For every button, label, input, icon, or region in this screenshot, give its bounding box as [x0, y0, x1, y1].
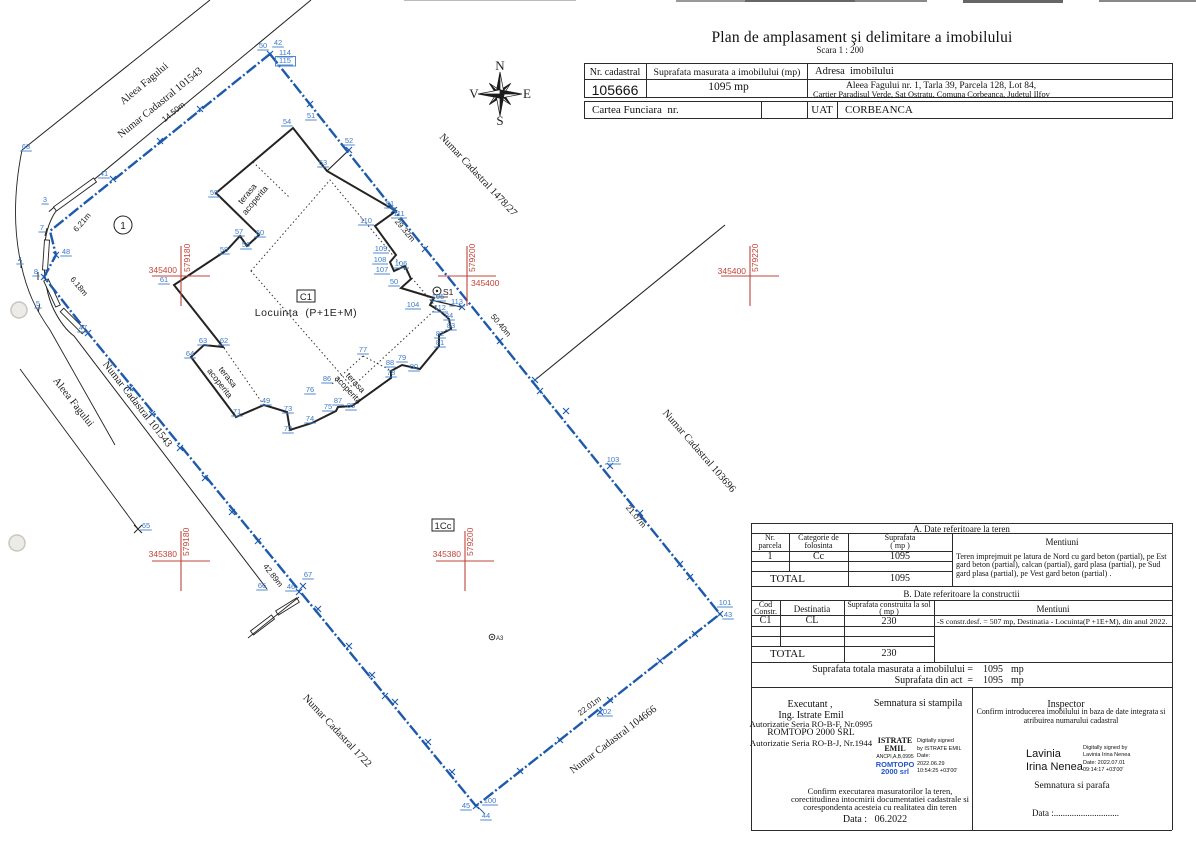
svg-text:50: 50: [259, 41, 267, 50]
svg-text:62: 62: [220, 336, 228, 345]
svg-text:104: 104: [407, 300, 420, 309]
svg-text:Locuinta (P+1E+M): Locuinta (P+1E+M): [255, 307, 357, 319]
svg-text:105: 105: [432, 292, 445, 301]
svg-text:63: 63: [199, 336, 207, 345]
svg-text:115: 115: [279, 56, 291, 65]
svg-text:8: 8: [34, 267, 38, 276]
svg-text:44: 44: [482, 811, 490, 820]
svg-text:64: 64: [186, 349, 194, 358]
svg-text:106: 106: [395, 259, 408, 268]
svg-text:579180: 579180: [181, 527, 191, 556]
svg-text:65: 65: [142, 521, 150, 530]
svg-text:68: 68: [22, 142, 30, 151]
svg-text:100: 100: [484, 796, 497, 805]
svg-text:1: 1: [120, 221, 126, 232]
svg-text:82: 82: [436, 329, 444, 338]
svg-text:56: 56: [242, 240, 250, 249]
svg-text:345400: 345400: [718, 266, 747, 276]
svg-text:21.07m: 21.07m: [624, 503, 648, 529]
svg-text:4: 4: [18, 255, 22, 264]
svg-text:579180: 579180: [182, 243, 192, 272]
svg-text:579200: 579200: [465, 527, 475, 556]
svg-text:61: 61: [160, 275, 168, 284]
svg-text:48: 48: [62, 247, 70, 256]
svg-text:54: 54: [283, 117, 291, 126]
svg-text:49: 49: [262, 396, 270, 405]
svg-text:77: 77: [359, 345, 367, 354]
svg-text:81: 81: [436, 338, 444, 347]
svg-text:52: 52: [345, 136, 353, 145]
svg-text:C1: C1: [300, 292, 312, 303]
svg-text:Numar Cadastral 1722: Numar Cadastral 1722: [300, 693, 373, 770]
svg-text:Numar Cadastral 1478/27: Numar Cadastral 1478/27: [437, 132, 519, 219]
svg-text:345400: 345400: [149, 265, 178, 275]
svg-text:73: 73: [284, 404, 292, 413]
svg-text:84: 84: [445, 311, 453, 320]
svg-text:Numar Cadastral 101543: Numar Cadastral 101543: [100, 359, 174, 449]
svg-text:110: 110: [360, 216, 372, 225]
svg-text:103: 103: [607, 455, 620, 464]
svg-text:78: 78: [387, 368, 395, 377]
svg-text:66: 66: [258, 581, 266, 590]
svg-text:6.21m: 6.21m: [71, 211, 93, 234]
svg-text:108: 108: [374, 255, 387, 264]
svg-text:51: 51: [386, 199, 394, 208]
svg-text:29.32m: 29.32m: [393, 217, 417, 243]
svg-text:107: 107: [376, 265, 389, 274]
svg-text:E: E: [523, 86, 531, 101]
svg-text:109: 109: [375, 244, 388, 253]
svg-text:43: 43: [724, 610, 732, 619]
svg-text:579220: 579220: [750, 243, 760, 272]
svg-text:345400: 345400: [471, 278, 500, 288]
svg-text:75: 75: [324, 402, 332, 411]
svg-text:50.40m: 50.40m: [489, 312, 513, 338]
svg-text:111: 111: [393, 209, 404, 218]
svg-text:80: 80: [410, 362, 418, 371]
svg-text:59: 59: [210, 188, 218, 197]
svg-text:7: 7: [40, 223, 44, 232]
svg-text:83: 83: [447, 321, 455, 330]
svg-text:45: 45: [462, 801, 470, 810]
svg-text:57: 57: [235, 227, 243, 236]
svg-text:67: 67: [304, 570, 312, 579]
svg-text:86: 86: [323, 374, 331, 383]
svg-text:113: 113: [451, 297, 463, 306]
svg-text:76: 76: [306, 385, 314, 394]
svg-text:1Cc: 1Cc: [435, 521, 452, 532]
svg-text:Aleea Fagului: Aleea Fagului: [50, 376, 95, 429]
svg-text:72: 72: [284, 424, 292, 433]
svg-text:Numar Cadastral 103696: Numar Cadastral 103696: [660, 408, 738, 495]
svg-text:V: V: [469, 86, 479, 101]
svg-text:74: 74: [306, 414, 314, 423]
svg-text:5: 5: [36, 299, 40, 308]
svg-text:A3: A3: [496, 636, 504, 642]
svg-text:79: 79: [398, 353, 406, 362]
svg-text:60: 60: [256, 228, 264, 237]
svg-text:N: N: [495, 58, 505, 73]
svg-text:102: 102: [599, 707, 612, 716]
svg-text:87: 87: [334, 396, 342, 405]
svg-text:58: 58: [220, 245, 228, 254]
svg-text:42: 42: [274, 38, 282, 47]
svg-text:S: S: [496, 113, 503, 128]
svg-text:41: 41: [100, 169, 108, 178]
svg-text:46: 46: [287, 582, 295, 591]
svg-text:53: 53: [319, 158, 327, 167]
svg-text:S1: S1: [443, 287, 454, 297]
svg-text:51: 51: [307, 111, 315, 120]
svg-text:71: 71: [233, 407, 241, 416]
svg-text:579200: 579200: [467, 243, 477, 272]
svg-text:345380: 345380: [433, 549, 462, 559]
svg-text:345380: 345380: [149, 549, 178, 559]
svg-text:3: 3: [43, 195, 47, 204]
svg-text:6.18m: 6.18m: [68, 275, 89, 298]
svg-text:50: 50: [390, 277, 398, 286]
svg-text:47: 47: [79, 323, 87, 332]
svg-text:85: 85: [347, 401, 355, 410]
svg-text:101: 101: [719, 598, 732, 607]
svg-text:88: 88: [386, 358, 394, 367]
